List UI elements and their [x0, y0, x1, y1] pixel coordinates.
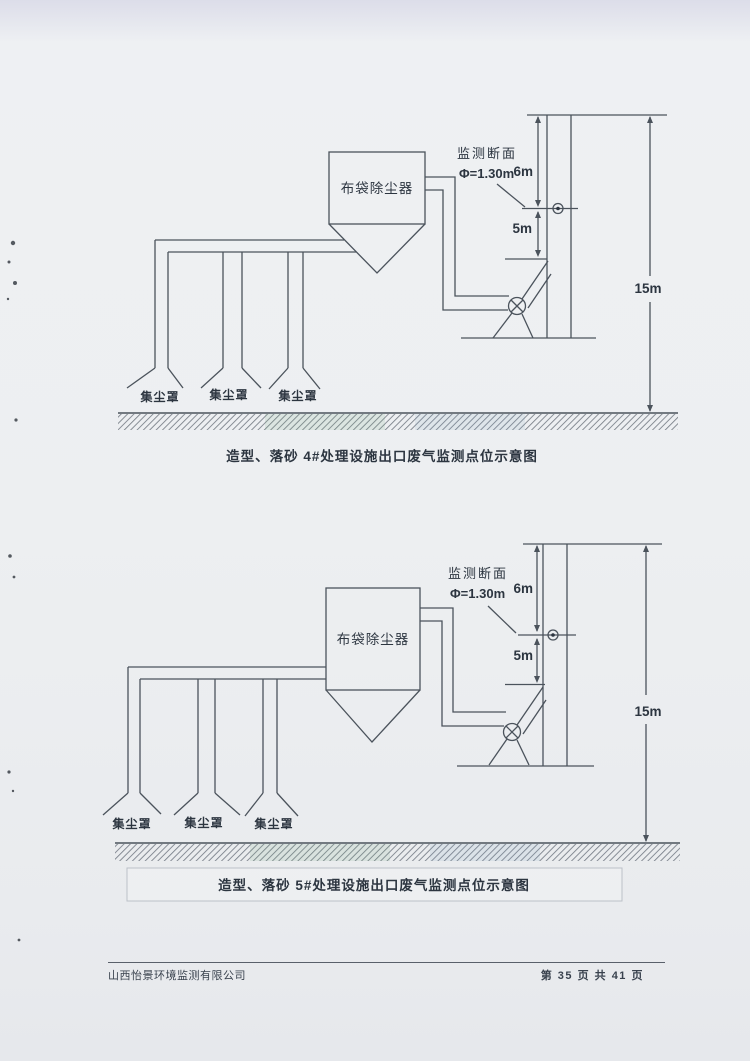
- bag-filter-hopper: [326, 690, 420, 742]
- label-leader-line: [488, 606, 516, 633]
- caption-diagram-5: 造型、落砂 5#处理设施出口废气监测点位示意图: [218, 877, 530, 893]
- monitoring-point-diagrams: 布袋除尘器 集尘罩 集尘罩 集尘罩 监测断面 Φ=1.30m 6m 5m 15m…: [0, 0, 750, 1061]
- hood-label-1: 集尘罩: [111, 816, 151, 831]
- footer-company-name: 山西怡景环境监测有限公司: [108, 967, 246, 983]
- hood-label-3: 集尘罩: [277, 388, 317, 403]
- outlet-duct-5: [420, 608, 506, 726]
- label-leader-line: [497, 184, 525, 207]
- hood-label-3: 集尘罩: [253, 816, 293, 831]
- ground-hatch-band: [118, 414, 678, 430]
- hood-label-2: 集尘罩: [183, 815, 223, 830]
- dim-6m-label: 6m: [513, 164, 533, 179]
- bag-filter-unit-5: [326, 588, 420, 742]
- caption-diagram-4: 造型、落砂 4#处理设施出口废气监测点位示意图: [226, 448, 538, 464]
- scanned-document-page: 布袋除尘器 集尘罩 集尘罩 集尘罩 监测断面 Φ=1.30m 6m 5m 15m…: [0, 0, 750, 1061]
- bag-filter-hopper: [329, 224, 425, 273]
- ground-hatch-band: [115, 844, 680, 861]
- dim-5m-label: 5m: [513, 648, 533, 663]
- fan-4: [461, 261, 596, 338]
- hood-label-1: 集尘罩: [139, 389, 179, 404]
- ground-5: [115, 843, 680, 861]
- diagram-5-labels: 布袋除尘器 集尘罩 集尘罩 集尘罩 监测断面 Φ=1.30m 6m 5m 15m…: [111, 566, 661, 893]
- diagram-5: [103, 544, 680, 901]
- dust-hoods-5: [103, 667, 326, 816]
- monitoring-section-label: 监测断面: [448, 566, 508, 581]
- bag-filter-label: 布袋除尘器: [337, 632, 410, 647]
- dim-15m-label: 15m: [634, 281, 661, 296]
- footer-page-number: 第 35 页 共 41 页: [541, 967, 644, 983]
- outlet-duct-4: [425, 177, 509, 310]
- hood-label-2: 集尘罩: [208, 387, 248, 402]
- ground-4: [118, 413, 678, 430]
- bag-filter-unit-4: [329, 152, 425, 273]
- bag-filter-label: 布袋除尘器: [341, 181, 414, 196]
- dust-hoods-4: [127, 240, 356, 389]
- diameter-label: Φ=1.30m: [450, 586, 505, 601]
- page-footer: 山西怡景环境监测有限公司 第 35 页 共 41 页: [108, 962, 665, 983]
- dimensions-5: [534, 545, 649, 842]
- dim-5m-label: 5m: [512, 221, 532, 236]
- dim-15m-label: 15m: [634, 704, 661, 719]
- dimensions-4: [535, 116, 653, 412]
- dim-6m-label: 6m: [513, 581, 533, 596]
- diameter-label: Φ=1.30m: [459, 166, 514, 181]
- scan-specks: [7, 241, 21, 942]
- diagram-4: [118, 115, 678, 430]
- monitoring-section-label: 监测断面: [457, 146, 517, 161]
